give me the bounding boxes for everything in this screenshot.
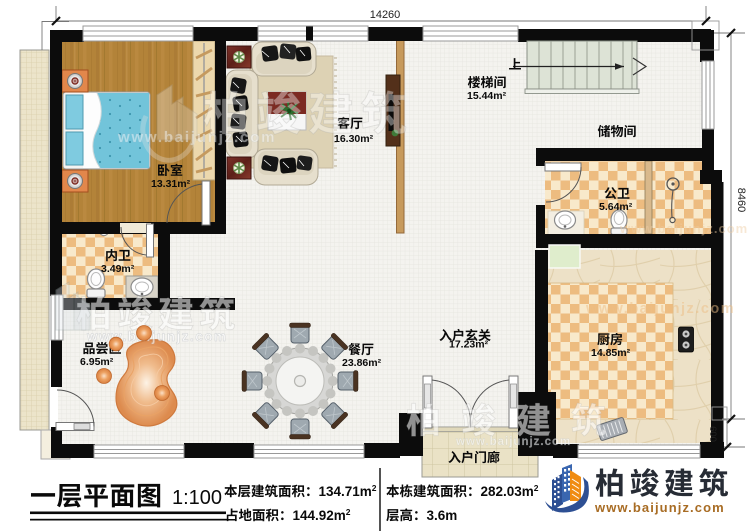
svg-text:3.49m²: 3.49m² — [101, 263, 135, 275]
svg-text:14.85m²: 14.85m² — [591, 347, 631, 359]
svg-text:5.64m²: 5.64m² — [599, 201, 633, 213]
svg-text:1:100: 1:100 — [172, 487, 222, 509]
svg-text:www.baijunjz.com: www.baijunjz.com — [86, 329, 228, 344]
svg-text:8460: 8460 — [735, 188, 747, 212]
svg-text:134.71m2: 134.71m2 — [319, 483, 377, 499]
svg-text:www.baijunjz.com: www.baijunjz.com — [594, 500, 725, 515]
svg-text:282.03m2: 282.03m2 — [481, 483, 539, 499]
svg-text:17.23m²: 17.23m² — [449, 339, 489, 351]
svg-text:13.31m²: 13.31m² — [151, 178, 191, 190]
svg-text:15.44m²: 15.44m² — [467, 90, 507, 102]
svg-text:3.6m: 3.6m — [427, 508, 458, 523]
svg-text:144.92m2: 144.92m2 — [293, 507, 351, 523]
svg-text:www.baijunjz.com: www.baijunjz.com — [619, 221, 748, 236]
svg-text:16.30m²: 16.30m² — [334, 133, 374, 145]
svg-text:14260: 14260 — [370, 9, 401, 21]
svg-text:23.86m²: 23.86m² — [342, 357, 382, 369]
svg-text:www.baijunjz.com: www.baijunjz.com — [455, 436, 571, 448]
svg-text:600: 600 — [707, 426, 718, 442]
svg-text:6.95m²: 6.95m² — [80, 356, 114, 368]
svg-text:www.baijunjz.com: www.baijunjz.com — [585, 301, 735, 317]
